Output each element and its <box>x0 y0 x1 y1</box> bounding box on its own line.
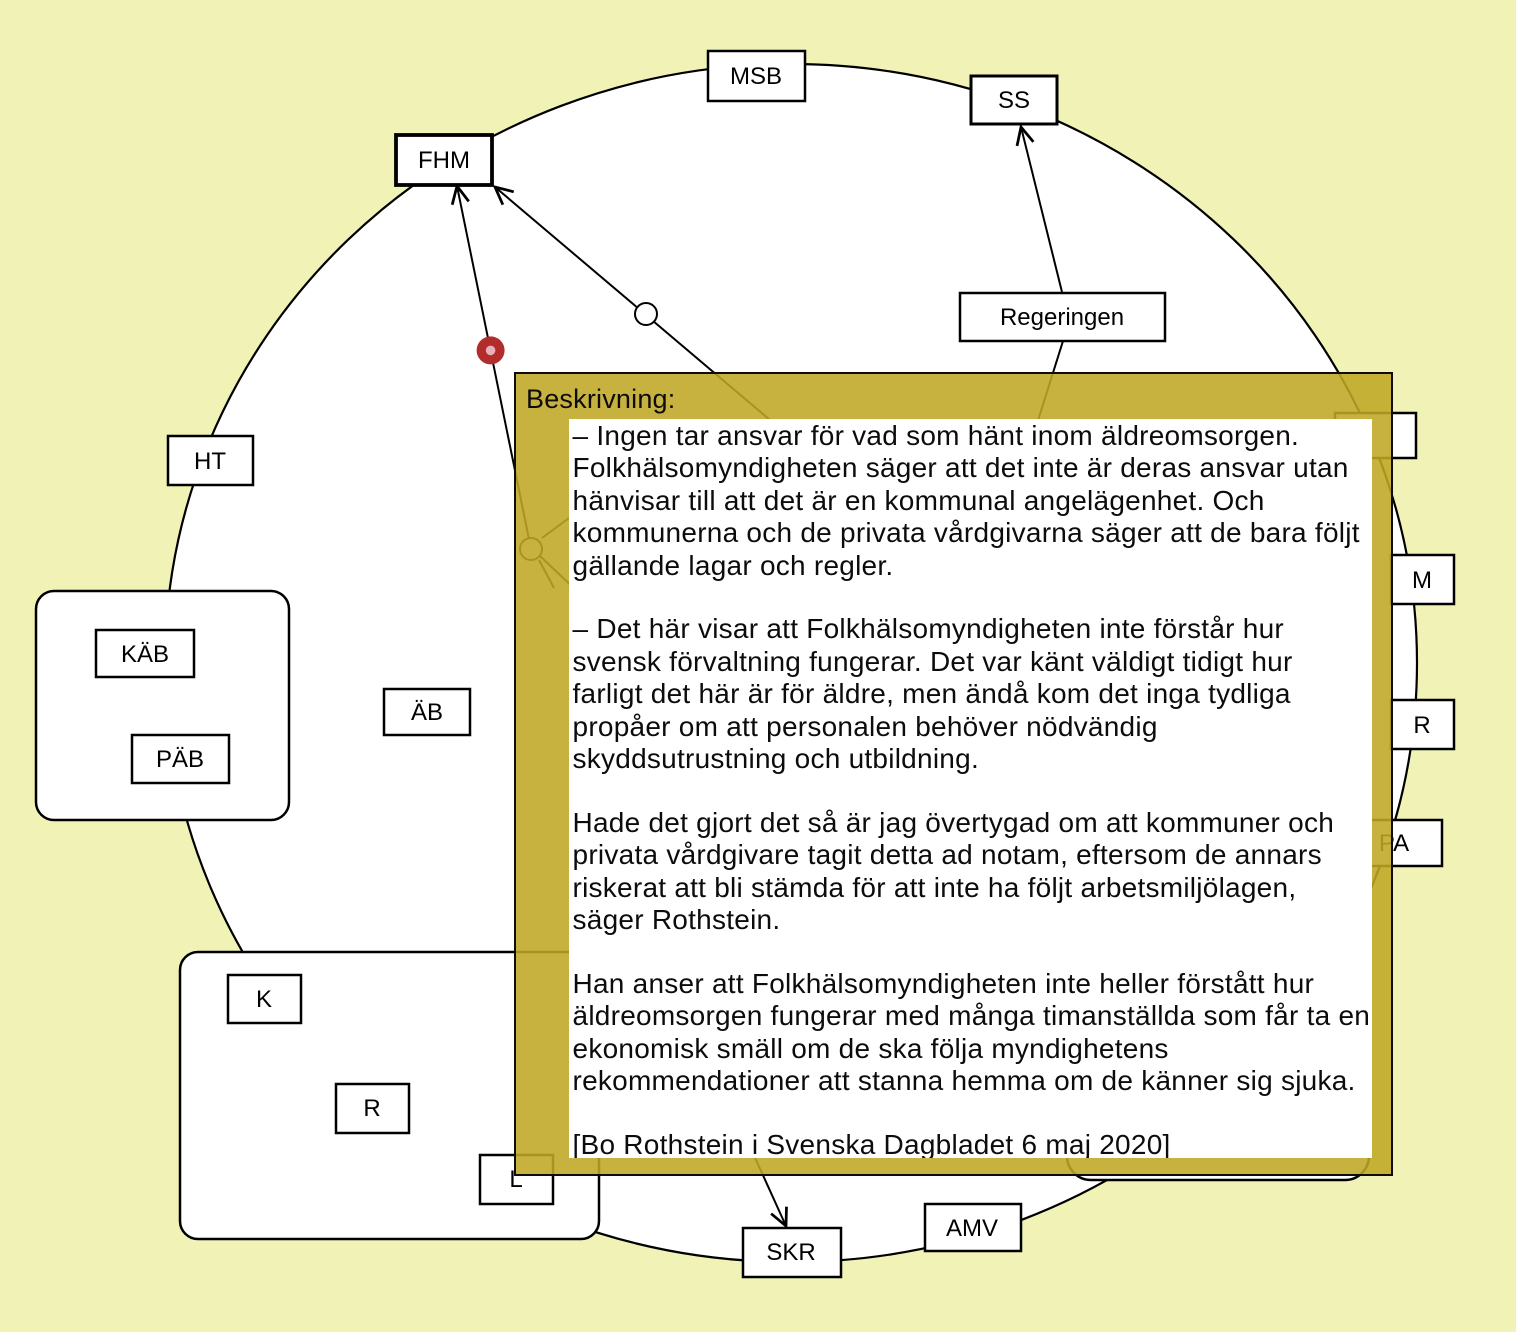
svg-text:PÄB: PÄB <box>156 746 204 773</box>
svg-text:SKR: SKR <box>766 1239 815 1266</box>
svg-text:AMV: AMV <box>946 1215 998 1242</box>
svg-text:Regeringen: Regeringen <box>1000 304 1124 331</box>
svg-text:KÄB: KÄB <box>121 641 169 668</box>
svg-text:R: R <box>363 1095 380 1122</box>
svg-text:HT: HT <box>194 448 226 475</box>
svg-text:FHM: FHM <box>418 147 470 174</box>
svg-text:ÄB: ÄB <box>411 699 443 726</box>
svg-text:MSB: MSB <box>730 63 782 90</box>
svg-text:SS: SS <box>998 87 1030 114</box>
svg-text:M: M <box>1412 567 1432 594</box>
svg-text:R: R <box>1413 712 1430 739</box>
svg-text:K: K <box>256 986 272 1013</box>
